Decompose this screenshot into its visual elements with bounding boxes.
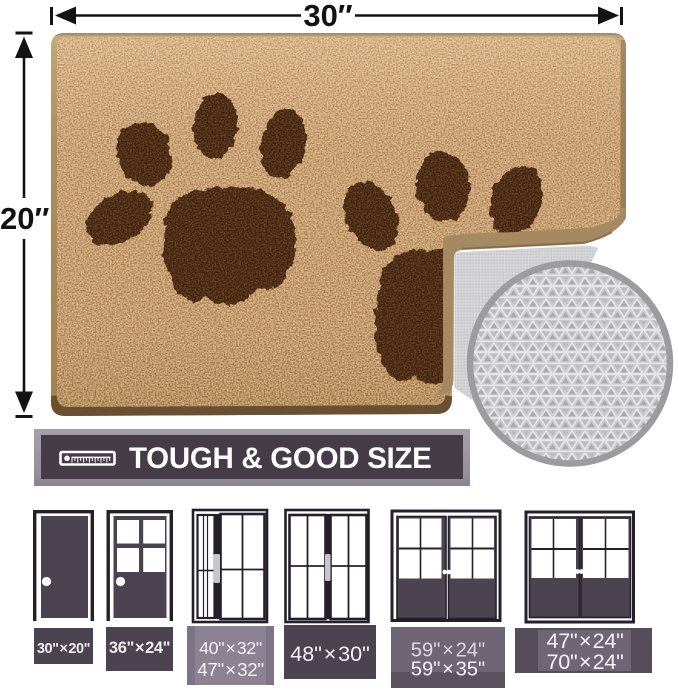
- svg-text:59" × 35": 59" × 35": [411, 659, 485, 681]
- svg-text:36" × 24": 36" × 24": [109, 639, 170, 657]
- svg-text:20″: 20″: [0, 201, 49, 236]
- svg-text:30″: 30″: [303, 0, 352, 33]
- svg-text:47" × 32": 47" × 32": [197, 659, 264, 680]
- svg-text:40" × 32": 40" × 32": [199, 638, 262, 658]
- svg-text:TOUGH & GOOD SIZE: TOUGH & GOOD SIZE: [129, 442, 432, 475]
- svg-text:70" × 24": 70" × 24": [547, 649, 624, 674]
- svg-text:48" × 30": 48" × 30": [290, 641, 370, 666]
- svg-text:30" × 20": 30" × 20": [37, 641, 90, 657]
